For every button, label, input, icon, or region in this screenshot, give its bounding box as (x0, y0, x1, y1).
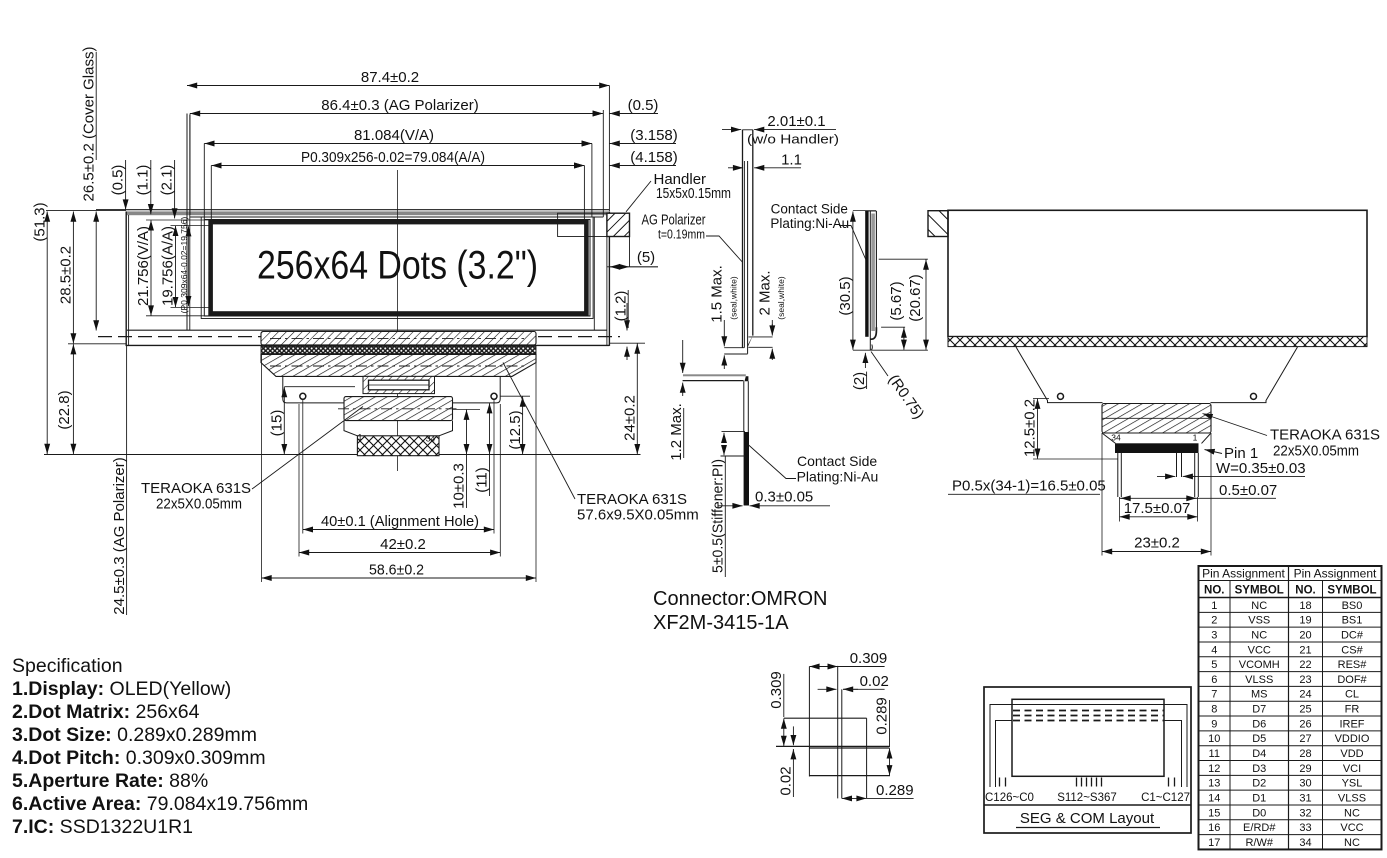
svg-text:4: 4 (1211, 644, 1217, 656)
svg-text:TERAOKA 631S: TERAOKA 631S (141, 480, 251, 497)
svg-text:10: 10 (1208, 733, 1220, 745)
svg-text:C126~C0: C126~C0 (985, 792, 1034, 804)
svg-text:(22.8): (22.8) (56, 390, 73, 429)
svg-text:33: 33 (1299, 822, 1311, 834)
svg-text:34: 34 (1111, 433, 1121, 443)
svg-text:VDDIO: VDDIO (1335, 733, 1370, 745)
svg-text:(2): (2) (851, 372, 868, 390)
svg-text:(0.5): (0.5) (628, 97, 659, 114)
svg-text:0.309: 0.309 (768, 671, 785, 709)
svg-text:28.5±0.2: 28.5±0.2 (58, 246, 75, 304)
svg-text:2: 2 (1211, 615, 1217, 627)
svg-text:SYMBOL: SYMBOL (1327, 585, 1376, 597)
svg-text:0.289: 0.289 (876, 782, 914, 799)
svg-text:1: 1 (358, 432, 363, 442)
svg-text:E/RD#: E/RD# (1243, 822, 1276, 834)
svg-text:7: 7 (1211, 689, 1217, 701)
svg-text:C1~C127: C1~C127 (1141, 792, 1190, 804)
svg-text:(5): (5) (637, 249, 655, 266)
svg-text:VCC: VCC (1248, 644, 1271, 656)
svg-text:P0.309x256-0.02=79.084(A/A): P0.309x256-0.02=79.084(A/A) (301, 149, 485, 166)
svg-text:VCOMH: VCOMH (1239, 659, 1280, 671)
svg-text:P0.5x(34-1)=16.5±0.05: P0.5x(34-1)=16.5±0.05 (952, 478, 1106, 495)
svg-text:34: 34 (1299, 837, 1311, 849)
svg-text:86.4±0.3 (AG Polarizer): 86.4±0.3 (AG Polarizer) (321, 97, 478, 114)
svg-text:24.5±0.3 (AG Polarizer): 24.5±0.3 (AG Polarizer) (111, 457, 128, 614)
svg-text:R/W#: R/W# (1246, 837, 1274, 849)
svg-text:11: 11 (1209, 748, 1220, 760)
svg-text:1: 1 (1193, 433, 1198, 443)
svg-text:NC: NC (1344, 837, 1360, 849)
svg-text:17: 17 (1208, 837, 1220, 849)
svg-text:0.289: 0.289 (874, 697, 891, 735)
svg-text:25: 25 (1299, 704, 1311, 716)
svg-text:28: 28 (1299, 748, 1311, 760)
svg-text:3: 3 (1211, 629, 1217, 641)
svg-text:(P0.309x64-0.02=19.756): (P0.309x64-0.02=19.756) (179, 217, 189, 314)
svg-text:81.084(V/A): 81.084(V/A) (354, 127, 434, 144)
svg-text:5.Aperture Rate: 88%: 5.Aperture Rate: 88% (12, 770, 208, 792)
svg-text:24: 24 (1299, 689, 1311, 701)
svg-text:NC: NC (1251, 629, 1267, 641)
svg-text:BS0: BS0 (1342, 600, 1363, 612)
svg-text:17.5±0.07: 17.5±0.07 (1124, 500, 1191, 517)
svg-text:31: 31 (1299, 792, 1311, 804)
svg-text:VCI: VCI (1343, 763, 1361, 775)
svg-text:0.309: 0.309 (850, 650, 888, 667)
svg-text:D3: D3 (1252, 763, 1266, 775)
svg-text:D1: D1 (1252, 792, 1266, 804)
svg-text:40±0.1 (Alignment Hole): 40±0.1 (Alignment Hole) (321, 513, 479, 530)
svg-text:NO.: NO. (1295, 585, 1315, 597)
svg-text:D4: D4 (1252, 748, 1266, 760)
svg-text:21.756(V/A): 21.756(V/A) (135, 226, 152, 306)
svg-text:19.756(A/A): 19.756(A/A) (160, 226, 177, 306)
svg-text:0.5±0.07: 0.5±0.07 (1219, 482, 1277, 499)
svg-text:NC: NC (1344, 807, 1360, 819)
svg-text:(12.5): (12.5) (507, 410, 524, 449)
svg-text:VLSS: VLSS (1338, 792, 1366, 804)
svg-text:15: 15 (1208, 807, 1220, 819)
svg-text:9: 9 (1211, 718, 1217, 730)
svg-text:19: 19 (1299, 615, 1311, 627)
svg-text:27: 27 (1299, 733, 1311, 745)
svg-text:VSS: VSS (1248, 615, 1270, 627)
svg-text:7.IC: SSD1322U1R1: 7.IC: SSD1322U1R1 (12, 816, 193, 838)
svg-text:CL: CL (1345, 689, 1359, 701)
svg-text:1.1: 1.1 (781, 152, 802, 169)
svg-text:TERAOKA 631S: TERAOKA 631S (1270, 427, 1380, 444)
svg-text:Pin Assignment: Pin Assignment (1202, 567, 1285, 581)
svg-text:24±0.2: 24±0.2 (622, 395, 639, 441)
svg-text:D7: D7 (1252, 704, 1266, 716)
svg-text:CS#: CS# (1341, 644, 1363, 656)
svg-text:(w/o Handler): (w/o Handler) (747, 133, 839, 147)
svg-text:12.5±0.2: 12.5±0.2 (1022, 399, 1039, 457)
svg-text:(20.67): (20.67) (907, 274, 924, 322)
svg-text:57.6x9.5X0.05mm: 57.6x9.5X0.05mm (577, 507, 699, 524)
svg-text:VCC: VCC (1340, 822, 1363, 834)
svg-text:87.4±0.2: 87.4±0.2 (361, 69, 419, 86)
svg-text:VLSS: VLSS (1245, 674, 1273, 686)
svg-text:YSL: YSL (1342, 778, 1363, 790)
svg-text:30: 30 (1299, 778, 1311, 790)
svg-text:D5: D5 (1252, 733, 1266, 745)
svg-text:Specification: Specification (12, 655, 123, 677)
svg-text:Pin Assignment: Pin Assignment (1294, 567, 1377, 581)
svg-text:23: 23 (1299, 674, 1311, 686)
svg-text:SEG & COM Layout: SEG & COM Layout (1020, 810, 1155, 827)
svg-text:0.02: 0.02 (860, 673, 889, 690)
svg-text:23±0.2: 23±0.2 (1134, 535, 1180, 552)
svg-text:2.01±0.1: 2.01±0.1 (767, 113, 825, 130)
svg-text:MS: MS (1251, 689, 1268, 701)
svg-text:32: 32 (1299, 807, 1311, 819)
svg-text:42±0.2: 42±0.2 (380, 536, 426, 553)
svg-text:0.3±0.05: 0.3±0.05 (755, 489, 813, 506)
svg-text:Plating:Ni-Au: Plating:Ni-Au (770, 216, 849, 231)
svg-text:W=0.35±0.03: W=0.35±0.03 (1216, 460, 1306, 477)
svg-text:26.5±0.2 (Cover Glass): 26.5±0.2 (Cover Glass) (80, 47, 97, 202)
svg-text:1.5 Max.: 1.5 Max. (709, 265, 726, 323)
svg-text:26: 26 (1299, 718, 1311, 730)
svg-text:FR: FR (1345, 704, 1360, 716)
svg-text:22: 22 (1299, 659, 1311, 671)
svg-text:1.2 Max.: 1.2 Max. (668, 403, 685, 461)
svg-text:0.02: 0.02 (778, 766, 795, 795)
svg-text:1: 1 (1211, 600, 1217, 612)
svg-text:(15): (15) (269, 410, 286, 437)
svg-text:Contact Side: Contact Side (771, 202, 848, 217)
svg-text:13: 13 (1208, 778, 1220, 790)
svg-text:12: 12 (1208, 763, 1220, 775)
svg-text:4.Dot Pitch: 0.309x0.309mm: 4.Dot Pitch: 0.309x0.309mm (12, 747, 266, 769)
svg-text:NC: NC (1251, 600, 1267, 612)
svg-text:29: 29 (1299, 763, 1311, 775)
svg-text:t=0.19mm: t=0.19mm (658, 228, 705, 242)
svg-text:(4.158): (4.158) (630, 149, 678, 166)
svg-text:22x5X0.05mm: 22x5X0.05mm (1273, 443, 1359, 460)
svg-text:AG Polarizer: AG Polarizer (642, 212, 706, 229)
svg-text:2 Max.: 2 Max. (757, 270, 774, 315)
svg-text:D2: D2 (1252, 778, 1266, 790)
svg-text:DC#: DC# (1341, 629, 1364, 641)
svg-text:1.Display: OLED(Yellow): 1.Display: OLED(Yellow) (12, 678, 231, 700)
svg-text:15x5x0.15mm: 15x5x0.15mm (656, 185, 731, 202)
svg-text:DOF#: DOF# (1337, 674, 1367, 686)
svg-text:NO.: NO. (1204, 585, 1224, 597)
svg-text:22x5X0.05mm: 22x5X0.05mm (156, 496, 242, 513)
svg-text:20: 20 (1299, 629, 1311, 641)
svg-text:(seal,white): (seal,white) (728, 276, 738, 320)
svg-text:14: 14 (1208, 792, 1220, 804)
svg-text:(0.5): (0.5) (110, 165, 127, 196)
svg-text:(5.67): (5.67) (888, 281, 905, 320)
svg-text:58.6±0.2: 58.6±0.2 (369, 562, 424, 579)
svg-text:6: 6 (1211, 674, 1217, 686)
svg-text:Plating:Ni-Au: Plating:Ni-Au (797, 469, 879, 485)
svg-text:6.Active Area: 79.084x19.756mm: 6.Active Area: 79.084x19.756mm (12, 793, 308, 815)
svg-text:Connector:OMRON: Connector:OMRON (653, 588, 828, 610)
svg-text:VDD: VDD (1340, 748, 1363, 760)
svg-text:RES#: RES# (1338, 659, 1368, 671)
svg-text:2.Dot Matrix: 256x64: 2.Dot Matrix: 256x64 (12, 701, 200, 723)
svg-text:10±0.3: 10±0.3 (451, 463, 468, 509)
svg-text:(3.158): (3.158) (630, 127, 678, 144)
svg-text:TERAOKA 631S: TERAOKA 631S (577, 491, 687, 508)
svg-text:(1.1): (1.1) (135, 165, 152, 196)
svg-text:(seal,white): (seal,white) (776, 276, 786, 320)
svg-text:34: 34 (426, 434, 436, 444)
svg-text:Contact Side: Contact Side (797, 453, 877, 469)
svg-text:(11): (11) (474, 467, 491, 493)
svg-text:D0: D0 (1252, 807, 1266, 819)
svg-text:SYMBOL: SYMBOL (1235, 585, 1284, 597)
svg-text:BS1: BS1 (1342, 615, 1363, 627)
svg-text:IREF: IREF (1339, 718, 1364, 730)
svg-text:8: 8 (1211, 704, 1217, 716)
svg-text:(1.2): (1.2) (612, 291, 629, 322)
svg-text:21: 21 (1299, 644, 1311, 656)
svg-text:5±0.5(Stiffener:PI): 5±0.5(Stiffener:PI) (709, 459, 726, 573)
svg-text:XF2M-3415-1A: XF2M-3415-1A (653, 612, 789, 634)
svg-text:(51.3): (51.3) (31, 202, 48, 241)
svg-text:D6: D6 (1252, 718, 1266, 730)
svg-text:3.Dot Size: 0.289x0.289mm: 3.Dot Size: 0.289x0.289mm (12, 724, 257, 746)
svg-text:(30.5): (30.5) (837, 276, 854, 315)
svg-text:(2.1): (2.1) (158, 165, 175, 196)
svg-text:S112~S367: S112~S367 (1057, 792, 1117, 804)
svg-text:18: 18 (1299, 600, 1311, 612)
svg-text:16: 16 (1208, 822, 1220, 834)
svg-text:5: 5 (1211, 659, 1217, 671)
